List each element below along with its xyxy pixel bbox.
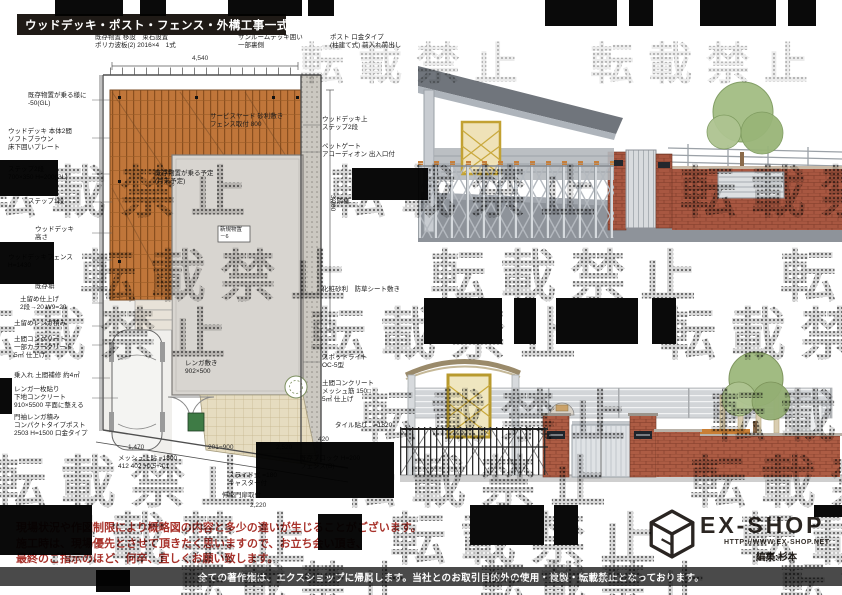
plan-annotation: サービスヤード 砂利敷き フェンス取付 800 xyxy=(210,113,283,129)
plan-annotation: ウッドデッキフェンス H=1430 xyxy=(8,254,73,270)
render-perspective xyxy=(418,60,842,242)
plan-annotation: ステップ1段 xyxy=(28,198,64,206)
plan-annotation: 門袖レンガ積み コンパクトタイプポスト 2503 H=1500 口金タイプ xyxy=(14,414,88,438)
footer-bar: 全ての著作権は、エクスショップに帰属します。当社とのお取引目的外の使用・複製・転… xyxy=(0,567,842,586)
plan-annotation: 既存物置が乗る予定 (月末予定) xyxy=(155,170,214,186)
plan-annotation: 土留めレンガ積み xyxy=(14,320,66,328)
site-plan: 既存物置 移設 束石設置 ポリカ波板(2) 2016×4 1式 サンルームデッキ… xyxy=(0,30,430,522)
disclaimer-line: 施工時は、現場優先とさせて頂きたく思いますので、お立ち会い頂き、 xyxy=(16,537,422,553)
render-elevation xyxy=(400,335,842,495)
disclaimer: 現場状況や作図制限により概略図の内容と多少の違いが生じることがございます。 施工… xyxy=(16,521,422,568)
plan-annotation: 201=900 xyxy=(208,444,234,451)
plan-annotation: ウッドデッキ 本体2間 ソフトブラウン 床下囲いプレート xyxy=(8,128,72,152)
plan-annotation: 1,470 xyxy=(128,444,144,451)
disclaimer-line: 最終のご指示のほど、何卒、宜しくお願い致します。 xyxy=(16,552,422,568)
plan-annotation: ペットゲート アコーディオン 出入口付 xyxy=(322,143,395,159)
plan-annotation: スポットライト OC-5型 xyxy=(322,354,368,370)
watermark-block xyxy=(700,0,776,26)
brick-wall xyxy=(670,166,842,230)
page-title: ウッドデッキ・ポスト・フェンス・外構工事一式 xyxy=(17,17,289,33)
plan-annotation: レンガ敷き 902×500 xyxy=(185,360,218,376)
plan-annotation: タイル貼り =1820 xyxy=(335,422,392,430)
side-panel xyxy=(792,403,822,431)
logo-credit: 編集:杉本 xyxy=(756,549,797,563)
plan-annotation: レンガ一枚貼り 下地コンクリート 910×5500 平面に整える xyxy=(14,386,84,410)
plan-annotation: 伸縮門扉取付 xyxy=(222,492,261,500)
tree xyxy=(707,82,783,172)
plan-annotation: 420 xyxy=(318,436,329,443)
page: 既存物置 移設 束石設置 ポリカ波板(2) 2016×4 1式 サンルームデッキ… xyxy=(0,0,842,595)
plan-annotation: 既存塀 xyxy=(35,283,55,291)
exshop-logo: EX-SHOP HTTP://WWW.EX-SHOP.NET 編集:杉本 xyxy=(648,506,838,564)
postbox-symbol xyxy=(188,413,204,431)
footer-text: 全ての著作権は、エクスショップに帰属します。当社とのお取引目的外の使用・複製・転… xyxy=(138,570,704,584)
plan-annotation: 土間コンクリート メッシュ筋 150□ 5㎡ 仕上げ xyxy=(322,380,374,404)
plan-annotation: お隣様 xyxy=(330,198,350,206)
plan-annotation: 乗入れ 土間補修 約4㎡ xyxy=(14,372,80,380)
existing-wall xyxy=(99,75,103,431)
plan-annotation: サンルームデッキ囲い 一部裏側 xyxy=(238,34,303,50)
title-bar: ウッドデッキ・ポスト・フェンス・外構工事一式 xyxy=(17,14,286,35)
plan-annotation: 土留め仕上げ 2段→20 W9=20 xyxy=(20,296,66,312)
shrub-symbol xyxy=(285,376,307,398)
plan-annotation: ウッドデッキ上 ステップ2段 xyxy=(322,116,368,132)
plan-annotation: 新規物置 －6 xyxy=(220,227,242,241)
watermark-block xyxy=(554,505,578,545)
accordion-gate xyxy=(418,161,614,238)
cube-icon xyxy=(648,508,696,560)
logo-url: HTTP://WWW.EX-SHOP.NET xyxy=(724,539,830,546)
watermark-block xyxy=(788,0,816,26)
dim-top: 4,540 xyxy=(192,55,208,62)
house-footprint xyxy=(172,155,303,395)
plan-annotation: 2,220 xyxy=(250,502,266,509)
plan-annotation: 2,520 xyxy=(276,444,292,451)
plan-annotation: ウッドデッキ 高さ xyxy=(35,226,74,242)
watermark-block xyxy=(308,0,334,16)
plan-annotation: 既存ブロック H=200 フェンス(B) xyxy=(300,455,360,471)
plan-annotation: スライド式 =180 キャスター付 xyxy=(228,472,277,488)
steps xyxy=(135,300,172,330)
watermark-block xyxy=(470,505,544,545)
disclaimer-line: 現場状況や作図制限により概略図の内容と多少の違いが生じることがございます。 xyxy=(16,521,422,537)
watermark-block xyxy=(629,0,653,26)
logo-text: EX-SHOP xyxy=(700,512,825,539)
plan-annotation: 土間コンクリート 一部カラークリート 5㎡ 仕上げ xyxy=(14,336,73,360)
plan-annotation: 既存物置が乗る様に -50(GL) xyxy=(28,92,87,108)
plan-annotation: メッシュ上貼 =1800 412 402 +0.5+4.1 xyxy=(118,455,177,471)
iron-fence xyxy=(400,427,548,475)
brick-wall-right xyxy=(696,429,842,477)
plan-annotation: ポスト 口金タイプ (柱建て式) 前入れ前出し xyxy=(330,34,401,50)
entrance-gate xyxy=(608,150,672,230)
plan-annotation: ステップ2段 700×350 H=200(GL) xyxy=(8,166,68,182)
plan-annotation: 化粧砂利 防草シート敷き xyxy=(322,286,400,294)
plan-annotation: 既存物置 移設 束石設置 ポリカ波板(2) 2016×4 1式 xyxy=(95,34,176,50)
watermark-block xyxy=(545,0,617,26)
